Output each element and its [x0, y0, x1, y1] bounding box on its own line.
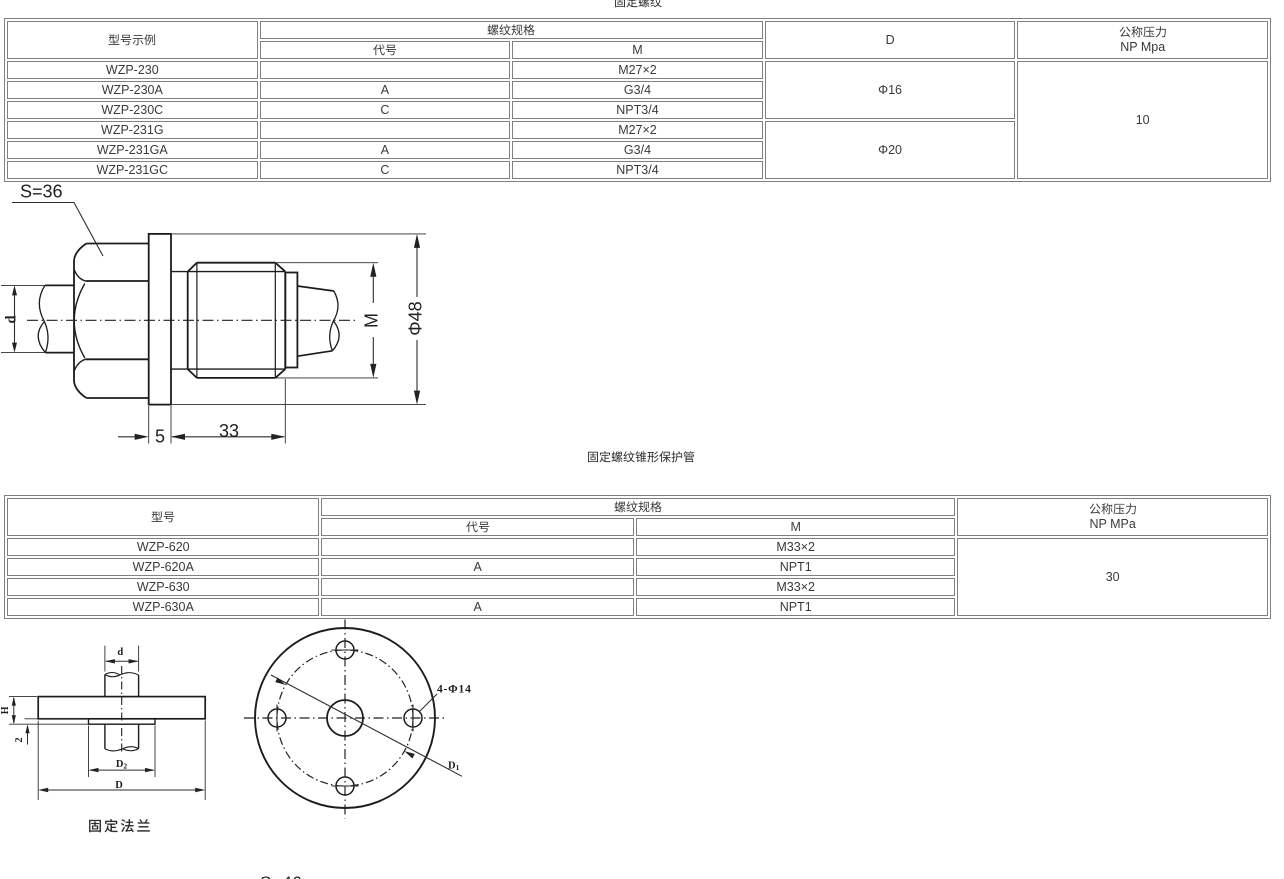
- svg-text:33: 33: [219, 421, 239, 441]
- svg-text:D2: D2: [116, 759, 128, 771]
- svg-text:D: D: [115, 780, 123, 791]
- svg-text:M: M: [361, 313, 381, 328]
- svg-text:D1: D1: [448, 761, 460, 773]
- svg-text:H: H: [0, 706, 11, 714]
- svg-text:5: 5: [155, 427, 165, 447]
- svg-text:d: d: [117, 647, 123, 658]
- svg-text:S=36: S=36: [20, 182, 63, 202]
- svg-text:2: 2: [14, 738, 25, 743]
- svg-text:d: d: [3, 315, 19, 323]
- svg-text:Φ48: Φ48: [405, 301, 425, 335]
- svg-text:4-Φ14: 4-Φ14: [437, 684, 472, 696]
